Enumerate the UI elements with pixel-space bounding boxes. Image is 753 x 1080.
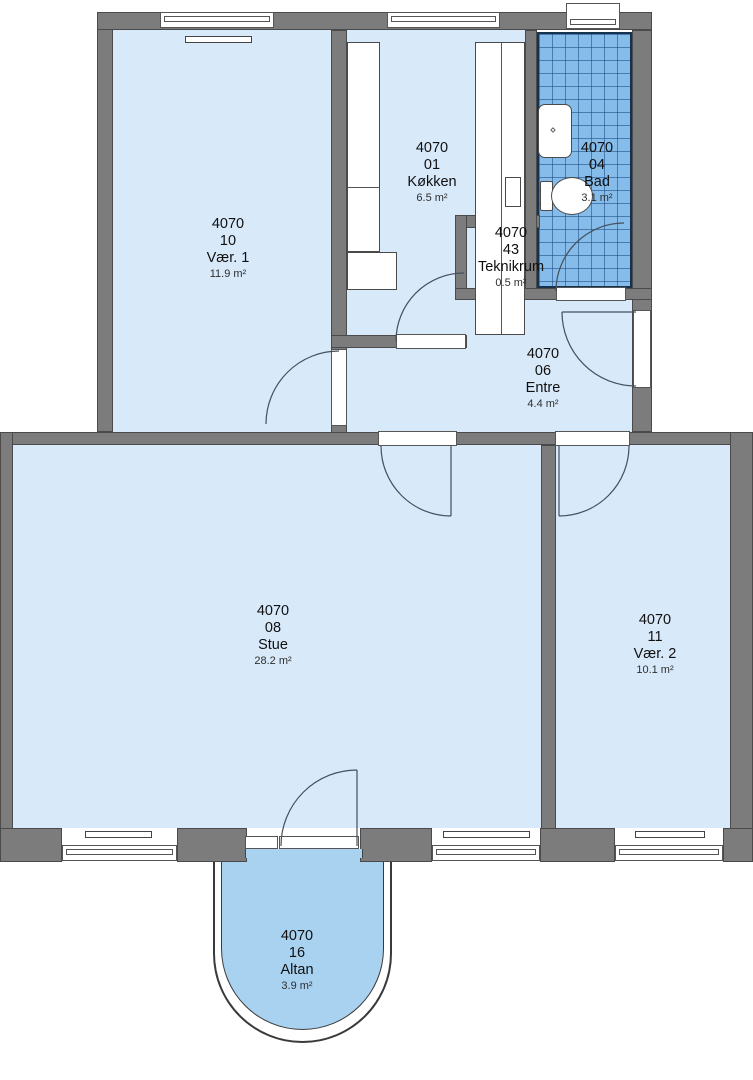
room-area: 6.5 m² <box>407 191 456 205</box>
window-glass <box>619 849 719 855</box>
wall-bottom-pier-3 <box>360 828 432 862</box>
window-stue-left <box>62 845 177 861</box>
wall-vaer1-right <box>331 30 347 352</box>
room-name: Stue <box>254 637 291 654</box>
kitchen-counter-left <box>347 42 380 252</box>
room-area: 28.2 m² <box>254 654 291 668</box>
room-area: 3.9 m² <box>280 979 313 993</box>
wall-lower-right <box>730 432 753 862</box>
shower-tray <box>538 104 572 158</box>
room-area: 11.9 m² <box>207 267 250 281</box>
wall-bottom-pier-5 <box>723 828 753 862</box>
room-label-entre: 4070 06 Entre 4.4 m² <box>526 346 561 411</box>
room-label-bad: 4070 04 Bad 3.1 m² <box>581 140 613 205</box>
room-name: Teknikrum <box>478 259 544 276</box>
door-bad <box>556 287 626 301</box>
room-code: 4070 <box>526 346 561 363</box>
room-area: 4.4 m² <box>526 397 561 411</box>
radiator-stue-left <box>85 831 152 838</box>
room-code: 4070 <box>581 140 613 157</box>
window-glass <box>570 19 616 25</box>
room-code: 4070 <box>207 216 250 233</box>
room-number: 43 <box>478 242 544 259</box>
refrigerator <box>347 252 397 290</box>
wall-lower-left <box>0 432 13 862</box>
door-balcony <box>279 836 359 849</box>
wall-upper-left <box>97 12 113 432</box>
room-name: Altan <box>280 962 313 979</box>
radiator-stue-right <box>443 831 530 838</box>
window-glass <box>66 849 173 855</box>
room-label-stue: 4070 08 Stue 28.2 m² <box>254 603 291 668</box>
room-label-vaer2: 4070 11 Vær. 2 10.1 m² <box>634 612 677 677</box>
cooktop <box>505 177 521 207</box>
window-vaer2 <box>615 845 723 861</box>
room-name: Vær. 1 <box>207 250 250 267</box>
room-number: 08 <box>254 620 291 637</box>
door-entrance <box>633 310 651 388</box>
room-code: 4070 <box>254 603 291 620</box>
room-number: 04 <box>581 157 613 174</box>
room-label-teknikrum: 4070 43 Teknikrum 0.5 m² <box>478 225 544 290</box>
room-number: 06 <box>526 363 561 380</box>
wall-bottom-pier-1 <box>0 828 62 862</box>
door-vaer1 <box>331 349 347 426</box>
radiator-vaer1 <box>185 36 252 43</box>
room-code: 4070 <box>478 225 544 242</box>
balcony-door-sill <box>245 849 363 858</box>
room-label-kokken: 4070 01 Køkken 6.5 m² <box>407 140 456 205</box>
wall-bottom-pier-4 <box>540 828 615 862</box>
room-name: Bad <box>581 174 613 191</box>
room-floor-entre <box>347 348 632 432</box>
door-stue <box>378 431 457 446</box>
wall-lower-top <box>0 432 753 445</box>
wall-stue-vaer2-divider <box>541 445 556 835</box>
window-glass <box>436 849 536 855</box>
wall-bottom-pier-2 <box>177 828 247 862</box>
room-code: 4070 <box>634 612 677 629</box>
room-name: Vær. 2 <box>634 646 677 663</box>
room-area: 0.5 m² <box>478 276 544 290</box>
window-glass <box>391 16 496 22</box>
window-kokken <box>387 12 500 28</box>
room-area: 3.1 m² <box>581 191 613 205</box>
window-glass <box>164 16 270 22</box>
room-name: Køkken <box>407 174 456 191</box>
room-area: 10.1 m² <box>634 663 677 677</box>
window-balcony-side <box>245 836 278 849</box>
room-code: 4070 <box>407 140 456 157</box>
radiator-vaer2 <box>635 831 705 838</box>
room-code: 4070 <box>280 928 313 945</box>
window-vaer1 <box>160 12 274 28</box>
room-name: Entre <box>526 380 561 397</box>
room-number: 11 <box>634 629 677 646</box>
window-bad <box>566 3 620 29</box>
room-label-altan: 4070 16 Altan 3.9 m² <box>280 928 313 993</box>
floor-plan: 4070 10 Vær. 1 11.9 m² 4070 01 Køkken 6.… <box>0 0 753 1080</box>
room-number: 10 <box>207 233 250 250</box>
door-kokken <box>396 334 466 349</box>
room-number: 16 <box>280 945 313 962</box>
door-vaer2 <box>555 431 630 446</box>
room-number: 01 <box>407 157 456 174</box>
window-stue-right <box>432 845 540 861</box>
room-label-vaer1: 4070 10 Vær. 1 11.9 m² <box>207 216 250 281</box>
